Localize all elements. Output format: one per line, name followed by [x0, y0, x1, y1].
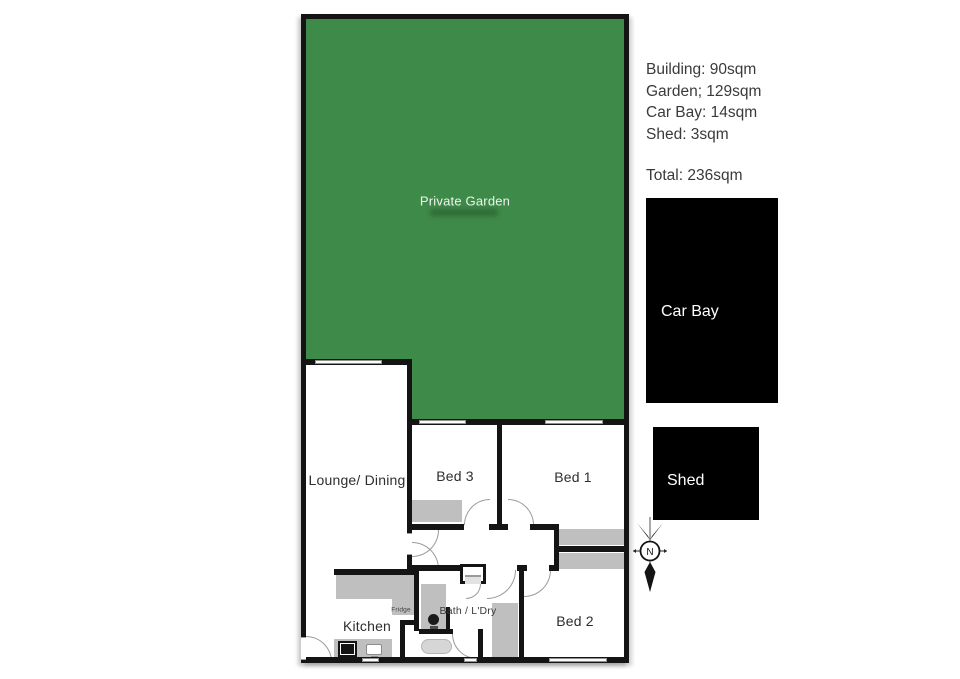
area-summary: Building: 90sqm Garden; 129sqm Car Bay: … [646, 59, 761, 145]
kitchen-window [362, 658, 379, 662]
car-bay-box: Car Bay [646, 198, 778, 403]
carbay-area-line: Car Bay: 14sqm [646, 102, 761, 124]
garden-label: Private Garden [420, 194, 510, 209]
stove-icon [338, 641, 357, 657]
bath-label: Bath / L'Dry [440, 605, 497, 617]
car-bay-label: Car Bay [661, 303, 719, 321]
bed1-wardrobe [559, 529, 624, 545]
bed2-window [549, 658, 607, 662]
garden-area-lower [407, 362, 629, 425]
wall-outer-top [301, 14, 629, 19]
kitchen-label: Kitchen [343, 618, 391, 634]
wall-outer-left [301, 14, 306, 663]
wall-wc-east [478, 629, 483, 658]
basin-icon [428, 614, 439, 625]
wall-bed2-west [519, 570, 524, 658]
shed-area-line: Shed: 3sqm [646, 124, 761, 146]
wall-kitchen-north [334, 569, 414, 575]
wall-hall-north-b [489, 524, 508, 530]
floor-plan-page: Private Garden [0, 0, 960, 679]
garden-label-shadow [430, 209, 498, 216]
compass-north-icon: N [622, 512, 678, 596]
wall-hall-south-c [549, 565, 559, 571]
entry-opening [301, 637, 306, 660]
total-area-line: Total: 236sqm [646, 167, 743, 185]
building-area-line: Building: 90sqm [646, 59, 761, 81]
hall-opening [407, 533, 412, 555]
bed2-label: Bed 2 [556, 613, 594, 629]
shed-box: Shed [653, 427, 759, 520]
north-label: N [646, 547, 653, 558]
lounge-label: Lounge/ Dining [309, 472, 406, 488]
bathtub-icon [421, 639, 452, 654]
fridge-label: Fridge [391, 607, 411, 614]
garden-area [301, 14, 629, 362]
bed1-window [545, 420, 603, 424]
bed3-window [419, 420, 466, 424]
bed2-wardrobe [559, 553, 624, 569]
bed3-wardrobe [412, 500, 462, 522]
wall-bed3-bed1 [497, 425, 502, 525]
bath-window [464, 658, 477, 662]
bed1-label: Bed 1 [554, 469, 592, 485]
bed3-label: Bed 3 [436, 468, 474, 484]
lounge-window [315, 360, 382, 364]
wall-hall-north-a [407, 524, 464, 530]
kitchen-sink-icon [366, 644, 382, 655]
wall-lounge-east [407, 359, 412, 530]
garden-area-line: Garden; 129sqm [646, 81, 761, 103]
shed-label: Shed [667, 472, 704, 490]
wall-bed1-south [559, 546, 629, 552]
washer-icon [465, 575, 481, 584]
wall-kitchen-bath [400, 622, 405, 658]
